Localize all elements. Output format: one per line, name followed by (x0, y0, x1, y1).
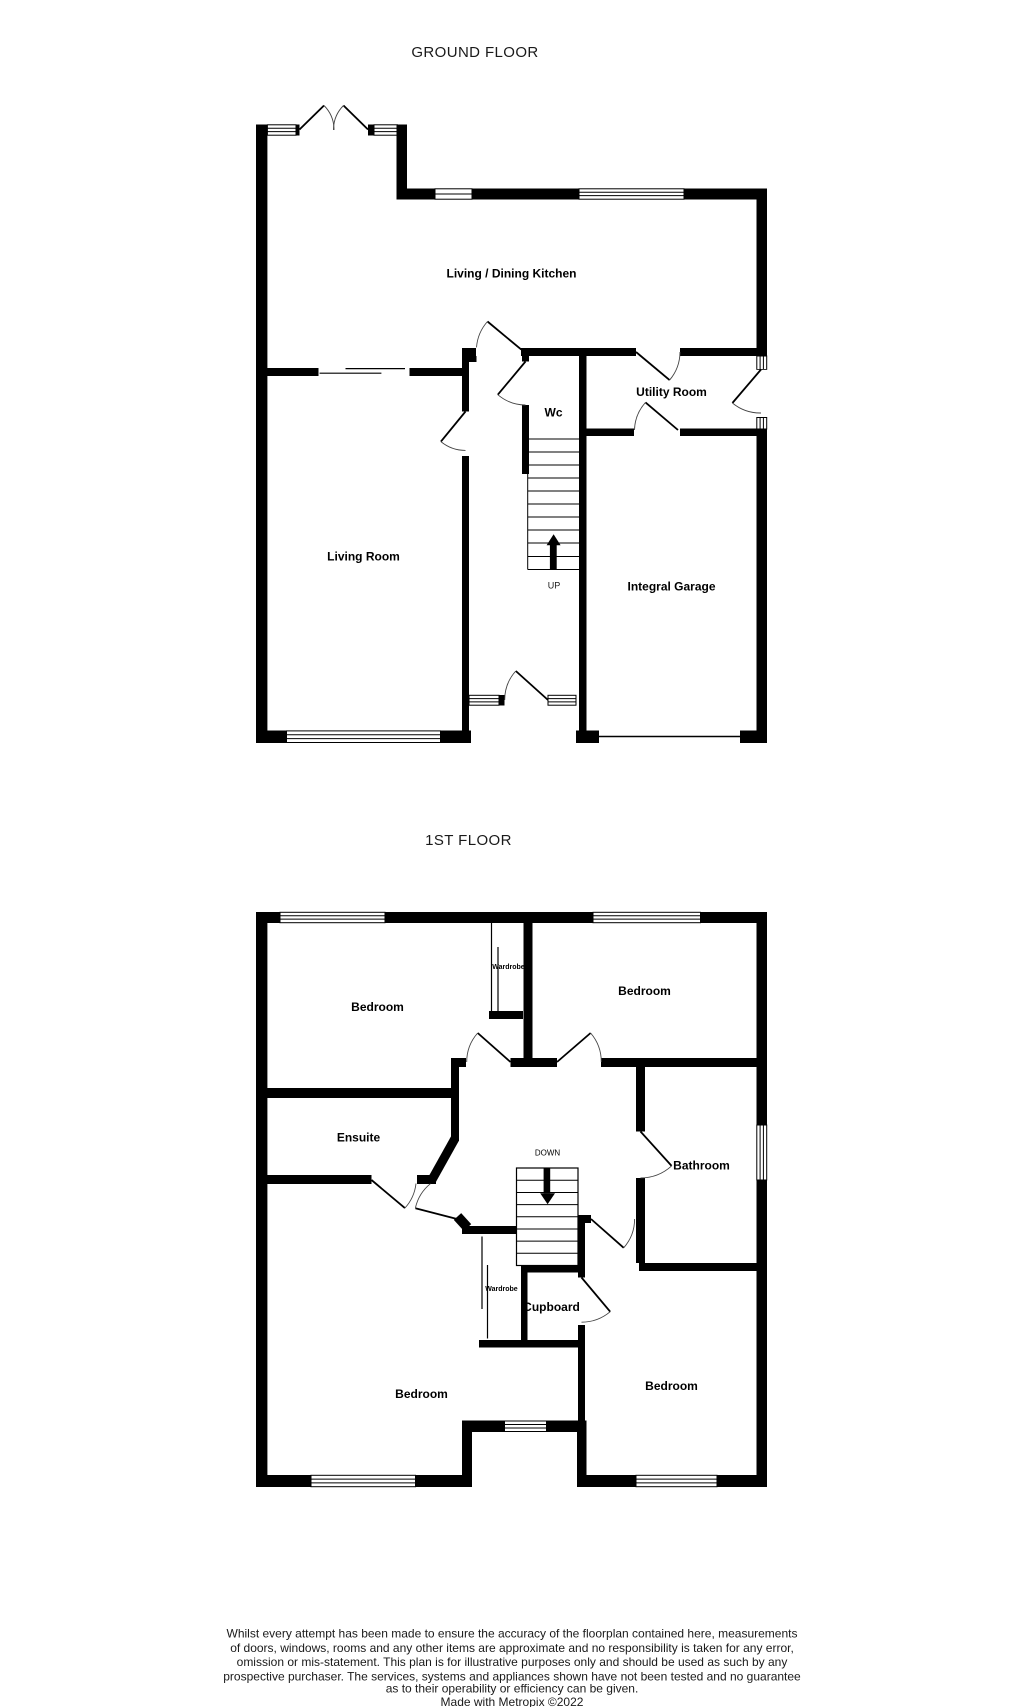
svg-text:Made with Metropix ©2022: Made with Metropix ©2022 (441, 1695, 584, 1707)
svg-text:Wardrobe: Wardrobe (492, 964, 525, 971)
svg-text:Integral Garage: Integral Garage (627, 580, 715, 594)
svg-text:of doors, windows, rooms and a: of doors, windows, rooms and any other i… (230, 1641, 794, 1655)
svg-text:Bedroom: Bedroom (351, 1000, 404, 1014)
svg-text:Bathroom: Bathroom (673, 1158, 730, 1172)
svg-text:Wc: Wc (545, 405, 563, 419)
svg-text:1ST FLOOR: 1ST FLOOR (425, 832, 512, 849)
svg-text:Bedroom: Bedroom (395, 1387, 448, 1401)
svg-text:Cupboard: Cupboard (523, 1300, 580, 1314)
svg-text:UP: UP (548, 581, 561, 591)
svg-text:as to their operability or eff: as to their operability or efficiency ca… (386, 1682, 639, 1696)
svg-text:Living / Dining Kitchen: Living / Dining Kitchen (447, 266, 577, 280)
svg-text:Wardrobe: Wardrobe (485, 1286, 518, 1293)
svg-text:Ensuite: Ensuite (337, 1130, 381, 1144)
svg-text:omission or mis-statement. Thi: omission or mis-statement. This plan is … (237, 1655, 788, 1669)
svg-text:GROUND FLOOR: GROUND FLOOR (411, 44, 538, 61)
svg-text:Bedroom: Bedroom (618, 984, 671, 998)
svg-text:Living Room: Living Room (327, 549, 400, 563)
svg-text:Utility Room: Utility Room (636, 385, 707, 399)
svg-text:Bedroom: Bedroom (645, 1379, 698, 1393)
svg-text:Whilst every attempt has been: Whilst every attempt has been made to en… (227, 1626, 798, 1640)
svg-text:DOWN: DOWN (535, 1148, 561, 1157)
